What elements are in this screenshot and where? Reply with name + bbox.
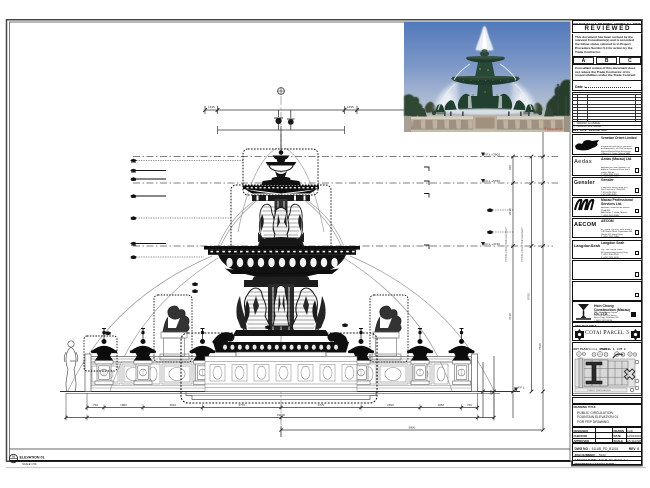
svg-text:PUBLIC CIRCULATION: PUBLIC CIRCULATION: [587, 389, 611, 392]
